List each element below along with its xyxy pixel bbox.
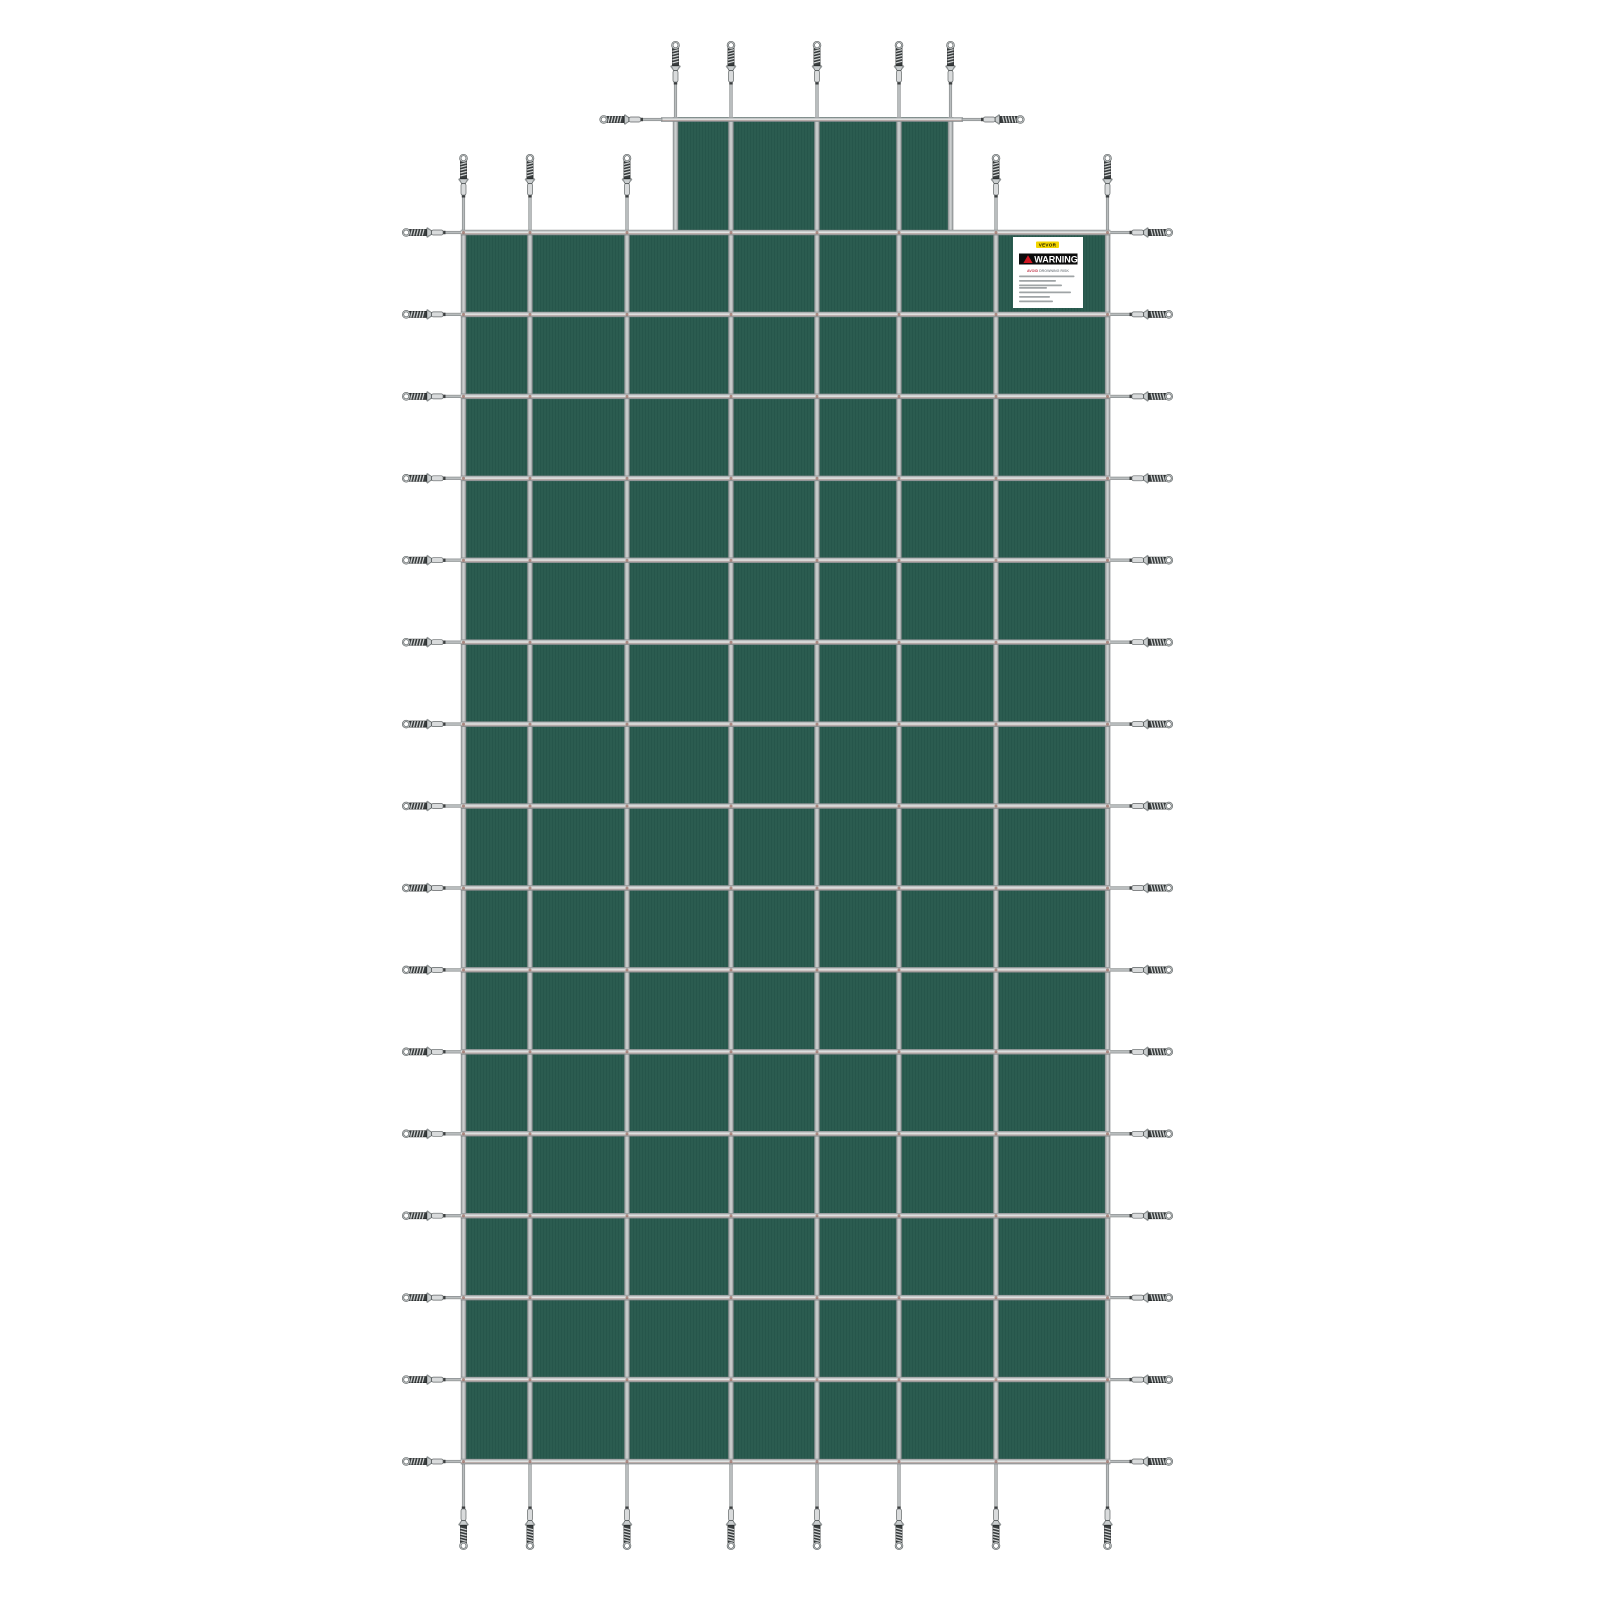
svg-text:WARNING: WARNING (1034, 255, 1078, 265)
svg-text:AVOID DROWNING RISK: AVOID DROWNING RISK (1027, 269, 1069, 273)
svg-text:VEVOR: VEVOR (1039, 243, 1057, 248)
